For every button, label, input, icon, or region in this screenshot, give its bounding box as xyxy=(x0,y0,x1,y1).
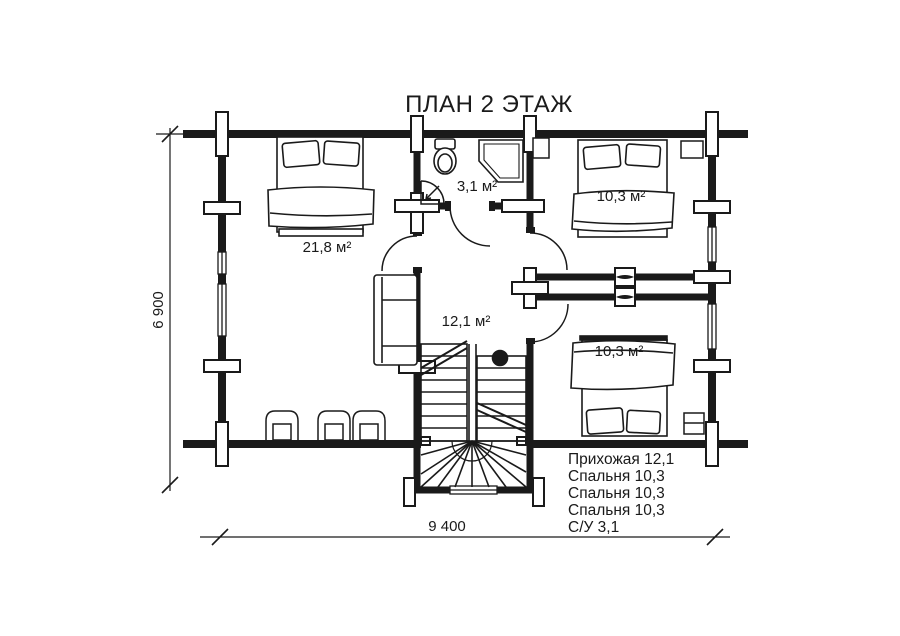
pillow xyxy=(586,408,624,434)
armchairs xyxy=(266,411,385,440)
dimension-vertical-label: 6 900 xyxy=(150,291,167,329)
floor-plan-page: ПЛАН 2 ЭТАЖ xyxy=(0,0,900,636)
shelf xyxy=(681,141,703,158)
blanket xyxy=(268,187,374,228)
log-crossing xyxy=(395,200,439,212)
log-crossing xyxy=(204,360,240,372)
pillow xyxy=(282,140,320,167)
pillow xyxy=(583,144,621,169)
wall-tie xyxy=(601,268,649,286)
log-crossing xyxy=(411,116,423,152)
bed-double-left xyxy=(268,137,374,236)
log-crossing xyxy=(216,112,228,156)
log-crossing xyxy=(706,422,718,466)
toilet xyxy=(434,139,456,174)
room-area-label: 3,1 м² xyxy=(457,178,497,195)
log-crossing xyxy=(694,360,730,372)
wall-tie xyxy=(601,288,649,306)
shower-cabin xyxy=(479,140,523,182)
log-crossing xyxy=(533,478,544,506)
log-crossing xyxy=(502,200,544,212)
pillow xyxy=(625,144,660,167)
dimension-horizontal-label: 9 400 xyxy=(428,518,466,535)
door-arc-bedroom-top-right xyxy=(530,233,567,270)
stair-break-line xyxy=(421,341,467,368)
room-area-label: 10,3 м² xyxy=(597,188,646,205)
window-right-1 xyxy=(708,227,716,262)
legend-line: С/У 3,1 xyxy=(568,519,619,536)
room-area-label: 21,8 м² xyxy=(303,239,352,256)
door-arc-bedroom-bottom-right xyxy=(530,304,568,342)
stair-post xyxy=(493,351,508,366)
room-legend: Прихожая 12,1 Спальня 10,3 Спальня 10,3 … xyxy=(568,451,674,536)
shelf xyxy=(533,138,549,158)
stair-flight-right xyxy=(477,356,526,441)
stair-winder xyxy=(421,441,526,487)
log-crossing xyxy=(706,112,718,156)
armchair xyxy=(318,411,350,440)
log-crossing xyxy=(512,282,548,294)
log-crossing xyxy=(694,271,730,283)
stair-flight-left xyxy=(421,341,467,441)
legend-line: Спальня 10,3 xyxy=(568,502,665,519)
window-right-2 xyxy=(708,304,716,349)
floor-plan-drawing: ПЛАН 2 ЭТАЖ xyxy=(0,0,900,636)
armchair xyxy=(266,411,298,440)
door-arc-bedroom-left xyxy=(382,236,417,271)
window-stairbay xyxy=(450,486,497,494)
arrow xyxy=(426,186,439,199)
legend-line: Спальня 10,3 xyxy=(568,468,665,485)
room-area-label: 12,1 м² xyxy=(442,313,491,330)
log-crossing xyxy=(216,422,228,466)
door-arc-bathroom xyxy=(450,206,490,246)
plan-title: ПЛАН 2 ЭТАЖ xyxy=(405,91,573,118)
log-crossing xyxy=(404,478,415,506)
sofa xyxy=(374,275,417,365)
room-area-label: 10,3 м² xyxy=(595,343,644,360)
pillow xyxy=(323,141,360,166)
legend-line: Прихожая 12,1 xyxy=(568,451,674,468)
pillow xyxy=(626,410,660,434)
log-crossing xyxy=(204,202,240,214)
bed-headboard xyxy=(580,336,667,340)
bed-footboard xyxy=(279,229,363,236)
log-crossing xyxy=(694,201,730,213)
armchair xyxy=(353,411,385,440)
staircase xyxy=(421,341,526,487)
window-left-1 xyxy=(218,252,226,274)
window-left-2 xyxy=(218,284,226,336)
legend-line: Спальня 10,3 xyxy=(568,485,665,502)
shelf xyxy=(684,413,704,434)
